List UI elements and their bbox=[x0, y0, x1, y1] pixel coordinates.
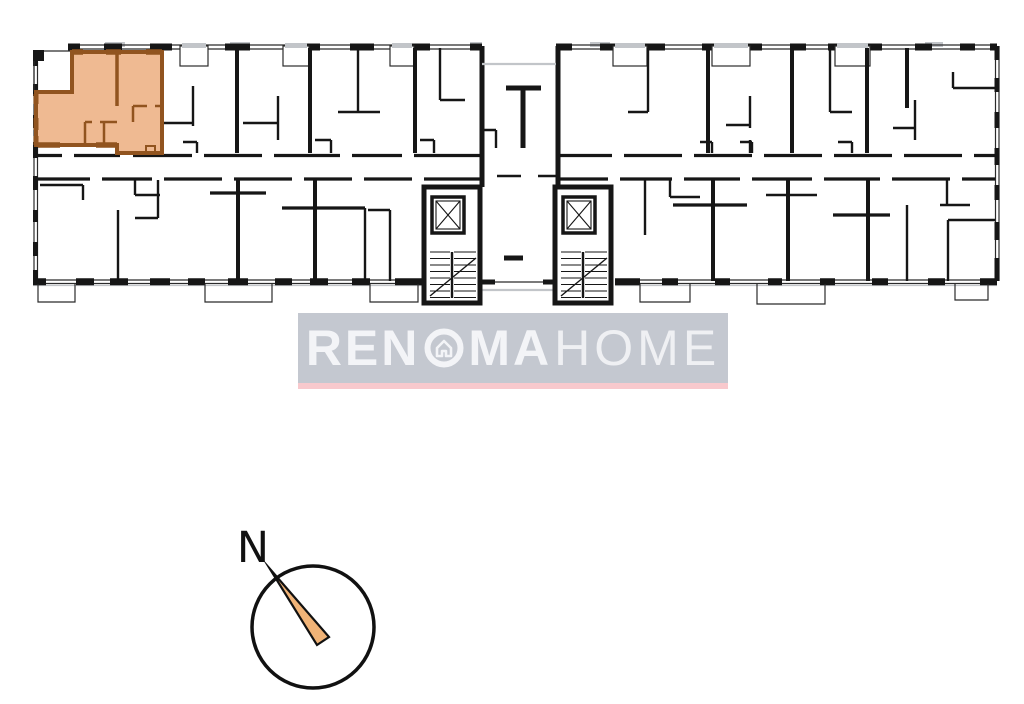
corner-pillar bbox=[33, 50, 44, 61]
central-connector bbox=[482, 64, 556, 290]
interior-walls-right-bottom bbox=[645, 178, 995, 281]
interior-walls-left-bottom bbox=[40, 180, 390, 281]
highlighted-apartment-unit[interactable] bbox=[36, 52, 162, 153]
compass-north-label: N bbox=[237, 523, 269, 573]
exterior-walls bbox=[33, 46, 997, 282]
page: REN MA HOME N bbox=[0, 0, 1024, 704]
interior-walls-left-top bbox=[162, 46, 558, 187]
interior-walls-right-top bbox=[628, 48, 995, 153]
facade-shading bbox=[33, 42, 997, 286]
compass-needle-icon bbox=[270, 569, 329, 645]
house-in-circle-icon bbox=[423, 327, 465, 369]
watermark-underline bbox=[298, 383, 728, 389]
brand-text-ma: MA bbox=[468, 323, 552, 373]
exterior-windows bbox=[33, 45, 999, 284]
loggia-niches bbox=[180, 43, 870, 66]
watermark-text: REN MA HOME bbox=[306, 323, 720, 373]
watermark-logo: REN MA HOME bbox=[298, 313, 728, 383]
stair-core-left bbox=[424, 187, 480, 303]
floor-plan bbox=[0, 0, 1024, 330]
compass-north-indicator: N bbox=[225, 515, 405, 704]
highlighted-apartment bbox=[36, 52, 162, 153]
brand-text-ren: REN bbox=[306, 323, 421, 373]
stair-core-right bbox=[555, 187, 611, 303]
brand-text-home: HOME bbox=[554, 323, 720, 373]
